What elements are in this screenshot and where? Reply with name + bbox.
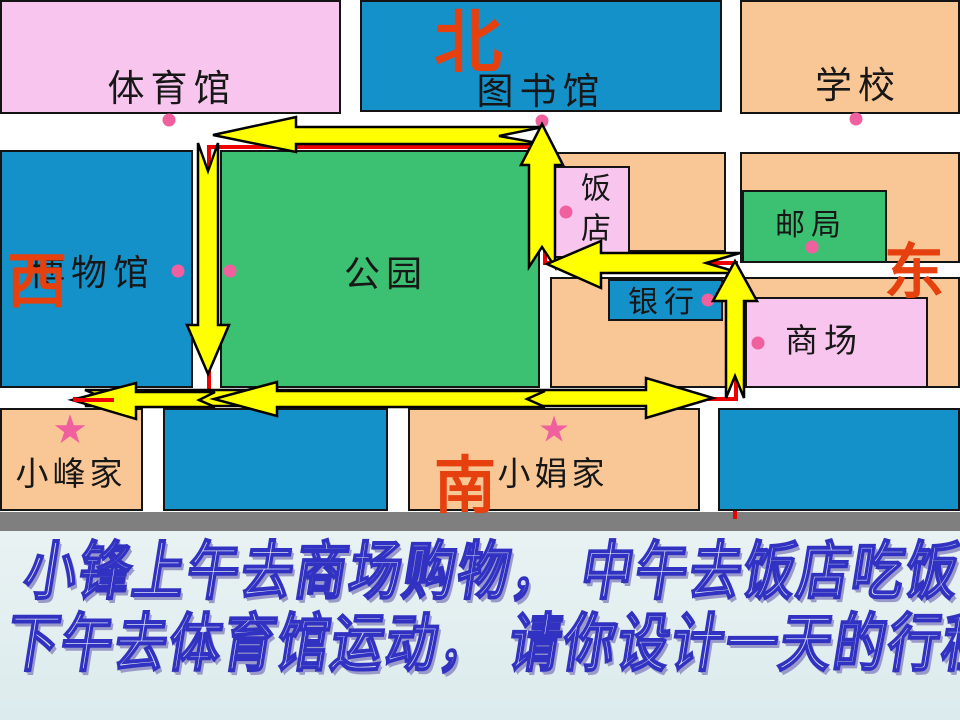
xiaofeng-home-label: 小峰家 — [16, 447, 127, 495]
question-panel: 小锋上午去商场购物， 中午去饭店吃饭 下午去体育馆运动， 请你设计一天的行程路线… — [0, 531, 960, 720]
xiaojuan-home-star-icon: ★ — [538, 410, 570, 451]
school-marker-dot — [850, 113, 863, 126]
xiaojuan-home-label: 小娟家 — [498, 447, 609, 495]
lesson-slide: 体育馆 图书馆 学校 博物馆 公园 饭店 邮局 银行 商场 小峰家 小娟家 ★ … — [0, 0, 960, 720]
restaurant-marker-dot — [560, 206, 573, 219]
route-arrow-west-top-road — [213, 117, 543, 152]
block-bottom-right-blue — [718, 408, 960, 511]
park-label: 公园 — [344, 245, 428, 297]
direction-west-label: 西 — [7, 252, 67, 312]
block-bottom-left-blue — [163, 408, 388, 511]
gym-marker-dot — [163, 114, 176, 127]
park-marker-dot — [224, 265, 237, 278]
direction-east-label: 东 — [884, 243, 944, 303]
direction-south-label: 南 — [434, 456, 496, 518]
library-marker-dot — [536, 115, 549, 128]
restaurant-label: 饭店 — [570, 172, 614, 252]
school-label: 学校 — [815, 55, 901, 109]
direction-north-label: 北 — [434, 9, 502, 77]
question-line-2: 下午去体育馆运动， 请你设计一天的行程路线？ — [2, 613, 960, 676]
museum-marker-dot — [172, 265, 185, 278]
post-office-label: 邮局 — [775, 200, 847, 244]
post-office-marker-dot — [806, 241, 819, 254]
gym-label: 体育馆 — [108, 58, 237, 112]
mall-label: 商场 — [785, 314, 863, 362]
mall-marker-dot — [752, 337, 765, 350]
bank-label: 银行 — [628, 277, 700, 321]
question-line-1: 小锋上午去商场购物， 中午去饭店吃饭 — [20, 541, 960, 604]
bank-marker-dot — [702, 294, 715, 307]
xiaofeng-home-star-icon: ★ — [52, 407, 88, 453]
